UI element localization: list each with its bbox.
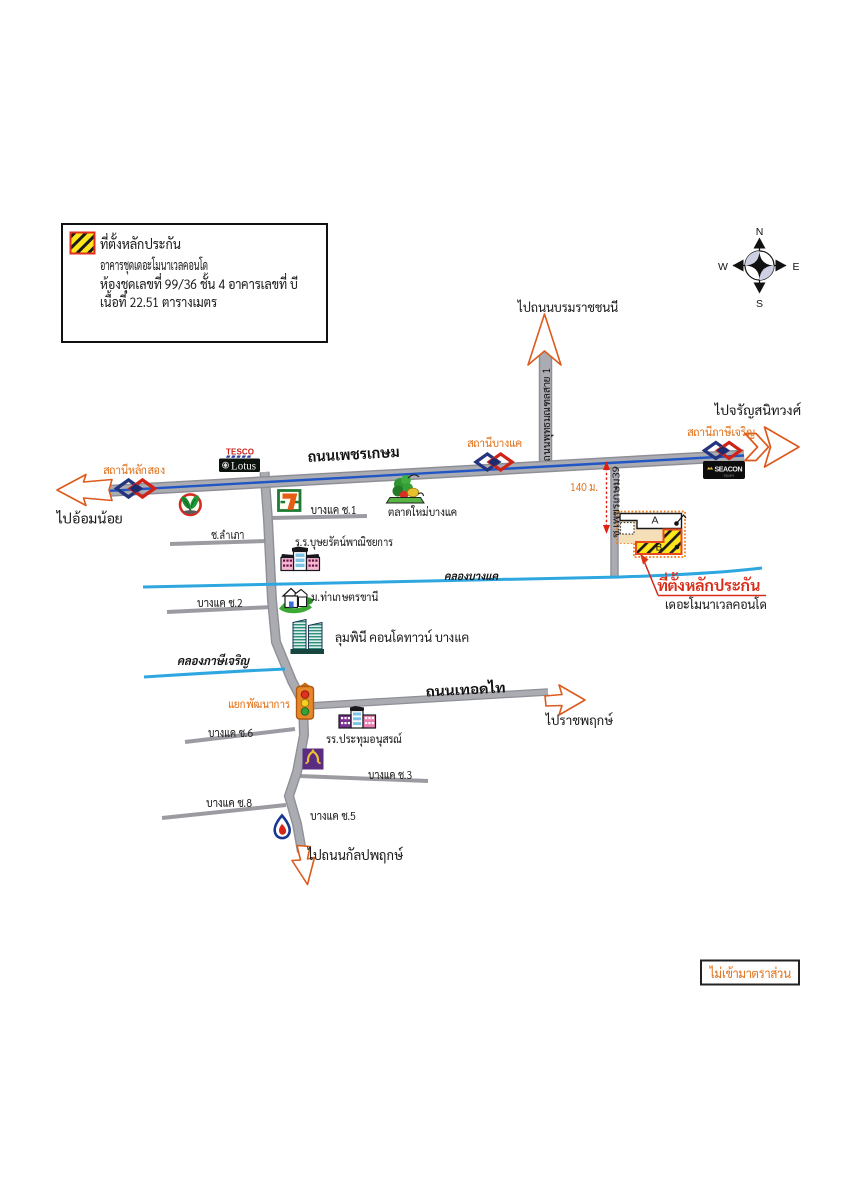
svg-text:อาคารชุดเดอะโมนาเวลคอนโด: อาคารชุดเดอะโมนาเวลคอนโด (100, 257, 208, 275)
svg-text:บางแค ซ.3: บางแค ซ.3 (368, 767, 412, 782)
svg-text:E: E (792, 261, 799, 273)
svg-text:บางแค ซ.2: บางแค ซ.2 (197, 595, 243, 610)
svg-text:บางแค ซ.8: บางแค ซ.8 (206, 795, 252, 810)
svg-text:ไปราชพฤกษ์: ไปราชพฤกษ์ (545, 711, 614, 729)
svg-text:บางแค ซ.1: บางแค ซ.1 (311, 502, 357, 517)
svg-text:คลองบางแค: คลองบางแค (444, 568, 499, 583)
svg-text:ลุมพินี คอนโดทาวน์ บางแค: ลุมพินี คอนโดทาวน์ บางแค (335, 628, 469, 647)
svg-text:คลองภาษีเจริญ: คลองภาษีเจริญ (177, 652, 251, 669)
svg-text:Lotus: Lotus (231, 461, 256, 473)
svg-text:A: A (651, 515, 658, 527)
svg-text:แยกพัฒนาการ: แยกพัฒนาการ (228, 696, 290, 711)
svg-text:สถานีหลักสอง: สถานีหลักสอง (103, 462, 165, 477)
svg-text:W: W (718, 261, 728, 273)
svg-text:ที่ตั้งหลักประกัน: ที่ตั้งหลักประกัน (100, 232, 181, 253)
svg-text:ม.ท่าเกษตรขานี: ม.ท่าเกษตรขานี (311, 589, 379, 604)
svg-text:สถานีภาษีเจริญ: สถานีภาษีเจริญ (687, 424, 755, 439)
svg-text:N: N (756, 226, 764, 238)
svg-text:ซ.เพชรเกษม39: ซ.เพชรเกษม39 (610, 466, 623, 538)
svg-text:square: square (724, 474, 735, 478)
svg-text:ถนนพุทธมณฑลสาย 1: ถนนพุทธมณฑลสาย 1 (540, 368, 554, 461)
svg-text:ร.ร.บุษยรัตน์พาณิชยการ: ร.ร.บุษยรัตน์พาณิชยการ (295, 534, 393, 551)
svg-text:ถนนเพชรเกษม: ถนนเพชรเกษม (307, 443, 400, 466)
svg-text:ไปถนนกัลปพฤกษ์: ไปถนนกัลปพฤกษ์ (307, 846, 404, 864)
svg-text:เดอะโมนาเวลคอนโด: เดอะโมนาเวลคอนโด (665, 596, 767, 613)
svg-text:เนื้อที่ 22.51 ตารางเมตร: เนื้อที่ 22.51 ตารางเมตร (100, 290, 217, 311)
svg-text:S: S (756, 298, 763, 310)
svg-text:ไปจรัญสนิทวงศ์: ไปจรัญสนิทวงศ์ (714, 401, 802, 419)
svg-text:ตลาดใหม่บางแค: ตลาดใหม่บางแค (388, 504, 457, 519)
svg-text:สถานีบางแค: สถานีบางแค (467, 435, 522, 450)
svg-text:140 ม.: 140 ม. (570, 479, 598, 494)
svg-text:ซ.ลำเภา: ซ.ลำเภา (211, 527, 244, 542)
svg-text:ห้องชุดเลขที่ 99/36 ชั้น 4 อาค: ห้องชุดเลขที่ 99/36 ชั้น 4 อาคารเลขที่ บ… (100, 272, 298, 294)
svg-text:SEACON: SEACON (715, 467, 743, 474)
svg-text:TESCO: TESCO (226, 448, 254, 457)
svg-text:รร.ประทุมอนุสรณ์: รร.ประทุมอนุสรณ์ (326, 731, 403, 748)
svg-text:บางแค ซ.6: บางแค ซ.6 (208, 725, 253, 740)
svg-text:ไปอ้อมน้อย: ไปอ้อมน้อย (56, 511, 123, 528)
svg-text:ไม่เข้ามาตราส่วน: ไม่เข้ามาตราส่วน (709, 965, 791, 982)
svg-text:ที่ตั้งหลักประกัน: ที่ตั้งหลักประกัน (657, 570, 761, 595)
svg-text:B: B (656, 543, 663, 554)
svg-text:ไปถนนบรมราชชนนี: ไปถนนบรมราชชนนี (517, 298, 618, 316)
svg-text:บางแค ซ.5: บางแค ซ.5 (310, 808, 356, 823)
